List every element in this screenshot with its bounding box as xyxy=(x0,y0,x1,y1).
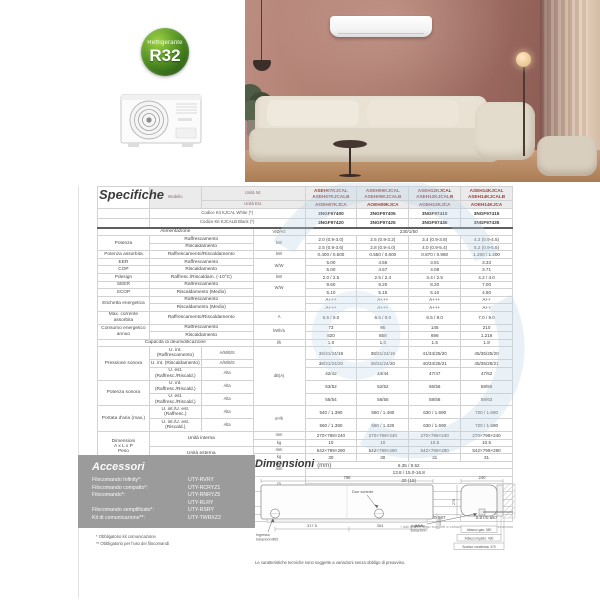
spec-cell: A+++ xyxy=(305,304,357,312)
spec-cell: 4.2 / 4.0 xyxy=(461,274,513,282)
side-ingresso-label-2: tubazioni xyxy=(411,529,426,533)
spec-cell: 47/47 xyxy=(409,367,461,380)
spec-cell: 1.216 xyxy=(461,332,513,340)
spec-row: AlimentazioneV/Ø/Hz230/1/50 xyxy=(98,228,513,236)
spec-row: Potenza assorbitaRaffrescamento/Riscalda… xyxy=(98,251,513,259)
spec-cell: dB(A) xyxy=(253,347,305,406)
spec-row: Codice Kit KJCALB Black (*)3NGF974203NGF… xyxy=(98,218,513,228)
spec-cell: 720 / 1.690 xyxy=(461,406,513,419)
spec-cell: 2.8 (0.9-4.0) xyxy=(357,243,409,251)
spec-cell: 38/31/24/19 xyxy=(357,347,409,360)
spec-row: Etichetta energeticaRaffrescamentoA+++A+… xyxy=(98,296,513,304)
spec-cell: 52/52 xyxy=(357,380,409,393)
spec-cell: A++ xyxy=(461,296,513,304)
dimensions-section: Dimensioni (mm) 798 D xyxy=(255,458,517,565)
spec-cell: 59/59 xyxy=(461,380,513,393)
spec-cell: Potenza sonora xyxy=(98,380,150,406)
spec-cell: 2.5 / 2.4 xyxy=(357,274,409,282)
spec-cell: A/M/B/S xyxy=(201,360,253,368)
scarico-condensa-label: Scarico condensa: 470 xyxy=(462,545,496,549)
spec-cell: mm xyxy=(253,432,305,439)
spec-cell: A+++ xyxy=(409,296,461,304)
spec-cell: Consumo energetico annuo xyxy=(98,324,150,339)
sofa-armrest xyxy=(475,102,535,160)
spec-cell: ASEH09KJCALASEH09KJCALB xyxy=(357,187,409,201)
spec-cell: A+++ xyxy=(305,296,357,304)
accessory-row: Kit di comunicazione**:UTY-TWRXZ2 xyxy=(92,515,247,523)
spec-cell: Riscaldamento (Medio) xyxy=(149,304,253,312)
spec-cell: 7.0 / 9.0 xyxy=(461,311,513,324)
spec-cell: 3NGF97405 xyxy=(357,209,409,218)
spec-row: Capacità di deumidificazionel/h1.01.01.5… xyxy=(98,339,513,347)
spec-cell: 540 / 1.390 xyxy=(305,406,357,419)
spec-cell: A++ xyxy=(461,304,513,312)
spec-cell: Codice Kit KJCALB Black (*) xyxy=(149,218,305,228)
spec-cell: ASEH14KJCALASEH14KJCALB xyxy=(461,187,513,201)
spec-cell: 230/1/50 xyxy=(305,228,513,236)
spec-cell: A xyxy=(253,311,305,324)
spec-cell: kW xyxy=(253,251,305,259)
spec-row: Pressione sonoraU. int. (Raffrescamento)… xyxy=(98,347,513,360)
spec-cell: 0.400 / 0.500 xyxy=(305,251,357,259)
accessory-label xyxy=(92,500,188,508)
spec-cell: 44/44 xyxy=(357,367,409,380)
spec-cell: 56/55 xyxy=(357,393,409,406)
spec-cell: m³/h xyxy=(253,406,305,432)
spec-cell: 1.8 xyxy=(461,339,513,347)
spec-cell: 858 xyxy=(357,332,409,340)
spec-row: Dimensioni A x L x P PesoUnità internamm… xyxy=(98,432,513,439)
spec-cell: 10.5 xyxy=(409,439,461,446)
side-ingresso-label-1: Ingresso xyxy=(411,524,425,528)
accessory-value: UTY-RSRY xyxy=(188,507,247,515)
spec-cell: 5.10 xyxy=(409,289,461,297)
spec-row: Unità esternamm542×799×290542×799×290542… xyxy=(98,447,513,454)
side-table xyxy=(333,140,367,148)
spec-cell: kW xyxy=(253,274,305,282)
spec-cell: 47/52 xyxy=(461,367,513,380)
spec-cell: 3.4 / 2.5 xyxy=(409,274,461,282)
spec-cell: Alta xyxy=(201,406,253,419)
spec-cell: Etichetta energetica xyxy=(98,296,150,311)
spec-cell: AOEH14KJCA xyxy=(461,201,513,209)
spec-cell: Alta xyxy=(201,419,253,432)
spec-cell: kWh/a xyxy=(253,324,305,339)
spec-cell: 3.91 xyxy=(409,258,461,266)
refrigerant-badge-label: Refrigerante xyxy=(147,40,182,46)
spec-cell: 53/52 xyxy=(305,380,357,393)
spec-cell: 270×798×240 xyxy=(461,432,513,439)
spec-cell: Raffrescamento xyxy=(149,236,253,244)
spec-cell: U. est. (Raffresc./Riscald.) xyxy=(149,367,201,380)
front-seg2-label: 354 xyxy=(377,523,384,528)
spec-row: U. int. (Riscaldamento)A/M/B/S38/31/24/2… xyxy=(98,360,513,368)
spec-cell: U. est. (Raffresc./Riscald.) xyxy=(149,393,201,406)
spec-cell: 5.00 xyxy=(305,258,357,266)
spec-cell: 270×798×240 xyxy=(305,432,357,439)
accessory-row: UTY-RLRY xyxy=(92,500,247,508)
spec-cell: 3NGF97425 xyxy=(357,218,409,228)
spec-cell: 698 xyxy=(409,332,461,340)
spec-cell: 3NGF97400 xyxy=(305,209,357,218)
indoor-ac-unit xyxy=(330,16,432,37)
spec-cell: Riscaldamento (Medio) xyxy=(149,289,253,297)
spec-cell: 9.20 xyxy=(357,281,409,289)
spec-cell: 720 / 1.690 xyxy=(461,419,513,432)
spec-row: EERRaffrescamentoW/W5.004.553.913.33 xyxy=(98,258,513,266)
spec-cell: 3NGF97420 xyxy=(305,218,357,228)
spec-cell: 0.550 / 0.600 xyxy=(357,251,409,259)
spec-cell: 1.0 xyxy=(357,339,409,347)
spec-cell: Raffrescamento xyxy=(149,281,253,289)
dimensions-footnote: Le caratteristiche tecniche sono soggett… xyxy=(255,560,517,565)
spec-cell: Riscaldamento xyxy=(149,243,253,251)
spec-cell: Raffrescamento/Riscaldamento xyxy=(149,311,253,324)
spec-cell: U. int./U. est. (Raffresc.) xyxy=(149,406,201,419)
accessories-footnote: * Obbligatorio kit comunicazione xyxy=(96,533,169,540)
spec-cell: Portata d'aria (max.) xyxy=(98,406,150,432)
accessory-row: Filocomando compatto*:UTY-RCRYZ1 xyxy=(92,485,247,493)
spec-cell: W/W xyxy=(253,258,305,273)
spec-cell: Alta xyxy=(201,367,253,380)
side-table-leg xyxy=(349,146,351,176)
accessory-value: UTY-RVRY xyxy=(188,477,247,485)
spec-cell: kW xyxy=(253,236,305,251)
spec-cell: Capacità di deumidificazione xyxy=(98,339,254,347)
floor-lamp xyxy=(516,52,531,67)
spec-cell: 5.00 xyxy=(305,266,357,274)
spec-cell: 59/63 xyxy=(461,393,513,406)
spec-cell: 45/35/25/20 xyxy=(461,347,513,360)
spec-cell: EER xyxy=(98,258,150,266)
spec-cell: 3NGF97435 xyxy=(461,218,513,228)
accessory-label: Filocomando*: xyxy=(92,492,188,500)
spec-section-title: Specifiche xyxy=(99,187,164,202)
spec-cell: 630 / 1.690 xyxy=(409,406,461,419)
spec-cell: mm xyxy=(253,447,305,454)
spec-cell: 560 / 1.420 xyxy=(357,419,409,432)
spec-cell: 1.5 xyxy=(409,339,461,347)
accessories-panel: Accessori Filocomando Infinity*:UTY-RVRY… xyxy=(78,455,255,528)
front-height-small-label: 43.5 xyxy=(438,519,442,526)
spec-cell: 820 xyxy=(305,332,357,340)
spec-cell: Riscaldamento xyxy=(149,266,253,274)
spec-cell: 560 / 1.390 xyxy=(305,419,357,432)
spec-cell: 10 xyxy=(357,439,409,446)
spec-cell: 7.00 xyxy=(461,281,513,289)
sofa-cushion xyxy=(367,100,459,126)
spec-cell: 3NGF97415 xyxy=(461,209,513,218)
spec-cell: 40/34/25/21 xyxy=(409,360,461,368)
spec-row: Codice Kit KJCAL White (*)3NGF974003NGF9… xyxy=(98,209,513,218)
spec-cell: AOEH07KJCA xyxy=(305,201,357,209)
spec-cell: 10.5 xyxy=(461,439,513,446)
spec-cell: 4.0 (0.9-5.4) xyxy=(409,243,461,251)
spec-cell: Alimentazione xyxy=(98,228,254,236)
spec-cell: ASEH12KJCALASEH12KJCALB xyxy=(409,187,461,201)
spec-cell: 2.5 (0.9-3.2) xyxy=(357,236,409,244)
spec-cell: 145 xyxy=(409,324,461,332)
spec-row: SCOPRiscaldamento (Medio)5.105.155.104.6… xyxy=(98,289,513,297)
attacco-liquido-label: Attacco liquido: 430 xyxy=(465,536,494,540)
attacco-gas-label: Attacco gas: 380 xyxy=(467,528,492,532)
spec-cell: 4.2 (0.9-4.5) xyxy=(461,236,513,244)
spec-cell: A+++ xyxy=(357,304,409,312)
refrigerant-badge-value: R32 xyxy=(149,47,180,64)
spec-cell: 41/34/25/20 xyxy=(409,347,461,360)
accessories-title: Accessori xyxy=(92,461,247,473)
spec-cell xyxy=(98,218,150,228)
spec-row: U. int./U. est. (Riscald.)Alta560 / 1.39… xyxy=(98,419,513,432)
spec-row: PotenzaRaffrescamentokW2.0 (0.9-3.0)2.5 … xyxy=(98,236,513,244)
spec-cell: Riscaldamento xyxy=(149,332,253,340)
spec-cell: 2.0 (0.9-3.0) xyxy=(305,236,357,244)
accessory-value: UTY-RNRYZ5 xyxy=(188,492,247,500)
spec-cell: 6.5 / 9.0 xyxy=(409,311,461,324)
spec-cell: Pressione sonora xyxy=(98,347,150,380)
refrigerant-badge: Refrigerante R32 xyxy=(141,28,189,76)
spec-cell: 2.0 / 2.5 xyxy=(305,274,357,282)
spec-cell: 542×799×290 xyxy=(461,447,513,454)
spec-row: U. est. (Raffresc./Riscald.)Alta55/5456/… xyxy=(98,393,513,406)
spec-row: PdesignRaffresc./Riscaldam. (-10°C)kW2.0… xyxy=(98,274,513,282)
accessory-row: Filocomando semplificato*:UTY-RSRY xyxy=(92,507,247,515)
spec-row: Max. corrente assorbitaRaffrescamento/Ri… xyxy=(98,311,513,324)
side-depth-label: 240 xyxy=(479,475,487,480)
spec-cell: Alta xyxy=(201,380,253,393)
front-ingresso-label-1: Ingresso xyxy=(256,533,270,537)
spec-cell: 4.67 xyxy=(357,266,409,274)
spec-cell: COP xyxy=(98,266,150,274)
spec-cell: Raffresc./Riscaldam. (-10°C) xyxy=(149,274,253,282)
spec-cell: 560 / 1.480 xyxy=(357,406,409,419)
accessory-label: Filocomando compatto*: xyxy=(92,485,188,493)
dimensions-unit-label: (mm) xyxy=(317,463,331,469)
spec-cell: Potenza xyxy=(98,236,150,251)
accessories-list: Filocomando Infinity*:UTY-RVRYFilocomand… xyxy=(92,477,247,522)
spec-cell: 1.0 xyxy=(305,339,357,347)
accessory-value: UTY-RLRY xyxy=(188,500,247,508)
spec-cell: 55/54 xyxy=(305,393,357,406)
spec-row: Potenza sonoraU. int. (Raffresc./Riscald… xyxy=(98,380,513,393)
pendant-cord xyxy=(261,0,262,62)
spec-cell: Raffrescamento xyxy=(149,324,253,332)
spec-cell: U. int./U. est. (Riscald.) xyxy=(149,419,201,432)
spec-cell: 95 xyxy=(357,324,409,332)
spec-cell: 3.33 xyxy=(461,258,513,266)
accessory-row: Filocomando Infinity*:UTY-RVRY xyxy=(92,477,247,485)
spec-cell: 42/42 xyxy=(305,367,357,380)
spec-cell: Unità interna xyxy=(149,432,253,447)
sofa-cushion xyxy=(267,100,359,126)
due-schede-label: Due schede xyxy=(352,489,374,494)
accessory-label: Kit di comunicazione**: xyxy=(92,515,188,523)
spec-cell: 8.20 xyxy=(409,281,461,289)
spec-cell: Raffrescamento xyxy=(149,258,253,266)
spec-cell: 542×799×290 xyxy=(305,447,357,454)
pouf xyxy=(537,136,597,176)
spec-cell: 270×798×240 xyxy=(357,432,409,439)
wall-hatch-icon xyxy=(503,484,515,518)
spec-cell: 2.5 (0.9-3.6) xyxy=(305,243,357,251)
spec-cell: Potenza assorbita xyxy=(98,251,150,259)
spec-cell: V/Ø/Hz xyxy=(253,228,305,236)
spec-cell: 58/58 xyxy=(409,393,461,406)
spec-cell: Raffrescamento/Riscaldamento xyxy=(149,251,253,259)
spec-cell: kg xyxy=(253,439,305,446)
spec-cell: Alta xyxy=(201,393,253,406)
spec-cell: 45/35/25/21 xyxy=(461,360,513,368)
spec-cell: 73 xyxy=(305,324,357,332)
accessories-footnotes: * Obbligatorio kit comunicazione** Obbli… xyxy=(96,533,169,547)
dimensions-drawing: 798 Due schede 317.5 354 63.5 xyxy=(255,472,517,556)
spec-cell: SEER xyxy=(98,281,150,289)
spec-cell: 270×798×240 xyxy=(409,432,461,439)
spec-row: Portata d'aria (max.)U. int./U. est. (Ra… xyxy=(98,406,513,419)
spec-cell: 4.08 xyxy=(409,266,461,274)
spec-cell: 3.4 (0.9-3.8) xyxy=(409,236,461,244)
accessory-label: Filocomando Infinity*: xyxy=(92,477,188,485)
spec-cell: 38/31/24/20 xyxy=(305,360,357,368)
spec-row: Consumo energetico annuoRaffrescamentokW… xyxy=(98,324,513,332)
sofa-seat xyxy=(249,128,501,162)
accessory-label: Filocomando semplificato*: xyxy=(92,507,188,515)
spec-cell: 3NGF97410 xyxy=(409,209,461,218)
spec-cell: U. int. (Riscaldamento) xyxy=(149,360,201,368)
front-ingresso-label-2: tubazioni Ø65 xyxy=(256,538,278,542)
spec-row: U. est. (Raffresc./Riscald.)Alta42/4244/… xyxy=(98,367,513,380)
accessory-value: UTY-TWRXZ2 xyxy=(188,515,247,523)
accessory-row: Filocomando*:UTY-RNRYZ5 xyxy=(92,492,247,500)
spec-cell: 542×799×290 xyxy=(357,447,409,454)
spec-cell: AOEH09KJCA xyxy=(357,201,409,209)
floor-lamp-stand xyxy=(523,64,525,156)
spec-cell xyxy=(98,209,150,218)
spec-cell: l/h xyxy=(253,339,305,347)
spec-cell: Codice Kit KJCAL White (*) xyxy=(149,209,305,218)
side-height-label: 270 xyxy=(452,499,456,505)
spec-cell: 3.71 xyxy=(461,266,513,274)
spec-cell: 210 xyxy=(461,324,513,332)
spec-cell: 10 xyxy=(305,439,357,446)
spec-cell: AOEH12KJCA xyxy=(409,201,461,209)
spec-cell: Unità Est. xyxy=(201,201,305,209)
spec-cell: Unità Int. xyxy=(201,187,305,201)
spec-cell: 3NGF97430 xyxy=(409,218,461,228)
spec-cell: A+++ xyxy=(357,296,409,304)
spec-cell: 56/56 xyxy=(409,380,461,393)
spec-row: SEERRaffrescamentoW/W9.609.208.207.00 xyxy=(98,281,513,289)
spec-cell: 36/31/24/19 xyxy=(305,347,357,360)
accessories-footnote: ** Obbligatorio per l'uso dei filocomand… xyxy=(96,540,169,547)
spec-cell: A+++ xyxy=(409,304,461,312)
spec-cell: 6.5 / 9.0 xyxy=(357,311,409,324)
spec-cell: 0.870 / 0.980 xyxy=(409,251,461,259)
spec-row: Riscaldamento2.5 (0.9-3.6)2.8 (0.9-4.0)4… xyxy=(98,243,513,251)
spec-cell: Raffrescamento xyxy=(149,296,253,304)
spec-cell: 5.15 xyxy=(357,289,409,297)
room-photo xyxy=(245,0,600,182)
spec-cell: 6.5 / 9.0 xyxy=(305,311,357,324)
spec-cell: 5.10 xyxy=(305,289,357,297)
spec-cell: ASEH07KJCALASEH07KJCALB xyxy=(305,187,357,201)
datasheet-page: Refrigerante R32 xyxy=(0,0,600,600)
spec-cell xyxy=(253,296,305,311)
spec-cell: A/M/B/S xyxy=(201,347,253,360)
front-seg1-label: 317.5 xyxy=(307,523,318,528)
spec-cell: 630 / 1.690 xyxy=(409,419,461,432)
accessory-value: UTY-RCRYZ1 xyxy=(188,485,247,493)
dimensions-title: Dimensioni xyxy=(255,458,314,470)
page-border-line xyxy=(78,186,79,598)
spec-cell: Max. corrente assorbita xyxy=(98,311,150,324)
spec-cell: 38/31/24/20 xyxy=(357,360,409,368)
spec-cell: 1.260 / 1.400 xyxy=(461,251,513,259)
spec-row: Riscaldamento (Medio)A+++A+++A+++A++ xyxy=(98,304,513,312)
spec-cell: U. int. (Raffrescamento) xyxy=(149,347,201,360)
spec-cell: 4.60 xyxy=(461,289,513,297)
spec-cell: W/W xyxy=(253,281,305,296)
spec-cell: SCOP xyxy=(98,289,150,297)
outdoor-unit-image xyxy=(120,92,204,152)
spec-row: Riscaldamento8208586981.216 xyxy=(98,332,513,340)
spec-cell: 9.60 xyxy=(305,281,357,289)
spec-cell: 5.2 (0.9-5.5) xyxy=(461,243,513,251)
spec-cell: 4.55 xyxy=(357,258,409,266)
front-width-label: 798 xyxy=(344,475,352,480)
side-table-foot xyxy=(339,174,361,177)
spec-cell: Pdesign xyxy=(98,274,150,282)
spec-cell: 542×799×290 xyxy=(409,447,461,454)
spec-row: COPRiscaldamento5.004.674.083.71 xyxy=(98,266,513,274)
spec-cell: U. int. (Raffresc./Riscald.) xyxy=(149,380,201,393)
